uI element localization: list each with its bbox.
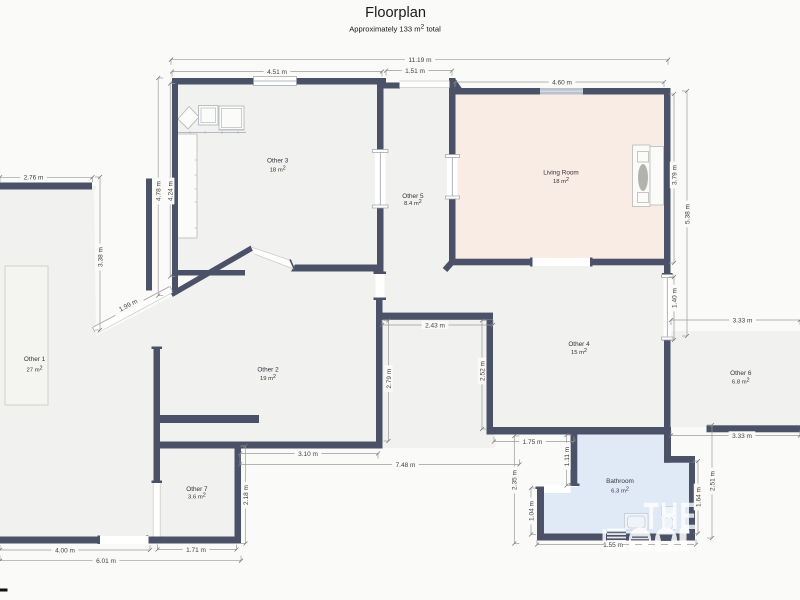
svg-text:2.51 m: 2.51 m [709, 471, 716, 491]
svg-text:3.33 m: 3.33 m [732, 433, 752, 440]
svg-text:2.52 m: 2.52 m [479, 361, 486, 381]
svg-text:Other 6: Other 6 [730, 370, 752, 377]
svg-text:1.55 m: 1.55 m [603, 542, 623, 549]
svg-text:Living Room: Living Room [543, 170, 579, 177]
svg-text:3.10 m: 3.10 m [298, 451, 318, 458]
svg-text:Other 3: Other 3 [267, 158, 289, 165]
svg-text:6.01 m: 6.01 m [96, 558, 116, 565]
svg-text:3.33 m: 3.33 m [733, 317, 753, 324]
svg-text:1.11 m: 1.11 m [564, 447, 571, 466]
svg-text:3.38 m: 3.38 m [97, 247, 104, 267]
svg-text:1.04 m: 1.04 m [528, 501, 535, 521]
svg-text:Other 4: Other 4 [568, 341, 590, 348]
svg-text:1.40 m: 1.40 m [671, 288, 678, 308]
svg-text:Floorplan: Floorplan [365, 5, 426, 21]
svg-text:2.18 m: 2.18 m [243, 485, 250, 505]
svg-text:3.79 m: 3.79 m [671, 165, 678, 185]
svg-text:Approximately 133 m2 total: Approximately 133 m2 total [349, 24, 441, 34]
svg-text:Bathroom: Bathroom [606, 478, 634, 485]
svg-text:7.48 m: 7.48 m [396, 462, 416, 469]
svg-text:4.78 m: 4.78 m [156, 181, 163, 201]
svg-text:2.76 m: 2.76 m [24, 175, 44, 182]
svg-text:4.51 m: 4.51 m [267, 69, 287, 76]
svg-text:2.43 m: 2.43 m [425, 322, 445, 329]
svg-text:Other 2: Other 2 [257, 367, 279, 374]
svg-text:4.24 m: 4.24 m [168, 181, 175, 201]
svg-text:2.35 m: 2.35 m [512, 470, 519, 490]
svg-text:1.71 m: 1.71 m [186, 547, 206, 554]
svg-text:4.60 m: 4.60 m [552, 79, 572, 86]
svg-text:Other 1: Other 1 [24, 356, 46, 363]
svg-text:1.51 m: 1.51 m [405, 68, 425, 75]
svg-text:5.38 m: 5.38 m [684, 204, 691, 224]
svg-text:11.19 m: 11.19 m [408, 57, 431, 64]
svg-text:4.00 m: 4.00 m [55, 547, 75, 554]
svg-text:1.75 m: 1.75 m [523, 439, 543, 446]
svg-text:2.79 m: 2.79 m [386, 369, 393, 389]
